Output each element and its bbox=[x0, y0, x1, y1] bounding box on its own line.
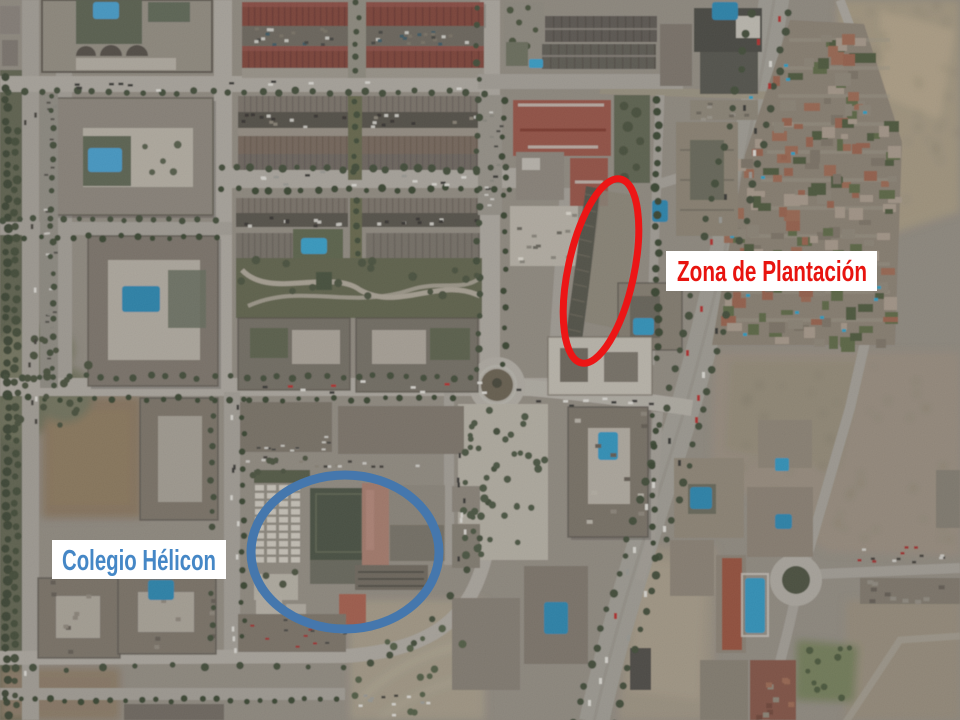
svg-text:Colegio Hélicon: Colegio Hélicon bbox=[62, 545, 216, 577]
svg-text:Zona de Plantación: Zona de Plantación bbox=[677, 256, 867, 288]
